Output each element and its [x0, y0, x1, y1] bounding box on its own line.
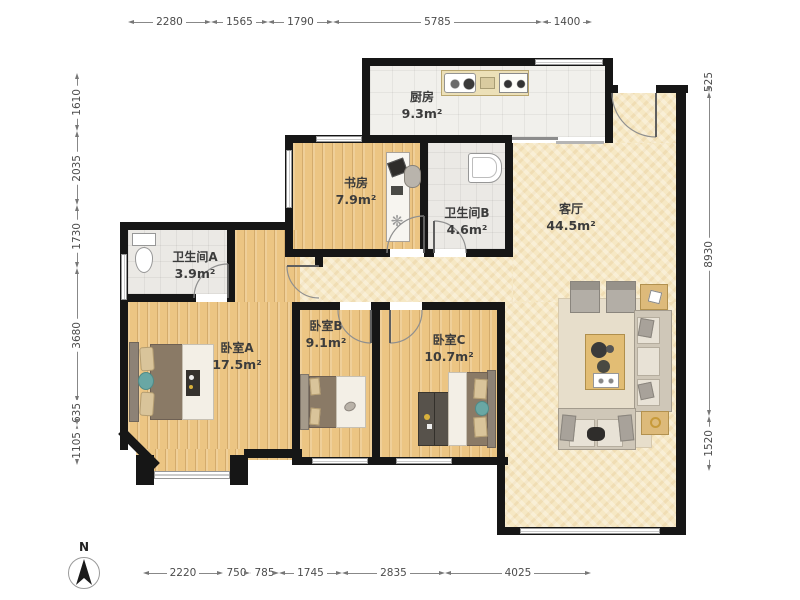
dim-top-3: 1790: [268, 15, 333, 29]
wall: [371, 302, 390, 310]
bay-window: [154, 471, 230, 479]
bathtub-icon: [468, 153, 502, 183]
wall: [605, 85, 618, 93]
bedroom-c-label: 卧室C 10.7m²: [404, 333, 494, 365]
wall: [372, 302, 380, 465]
dim-top-4: 5785: [333, 15, 542, 29]
bedroom-b-name: 卧室B: [281, 319, 371, 335]
side-table: [641, 411, 669, 435]
bedroom-a-label: 卧室A 17.5m²: [192, 341, 282, 373]
sofa-cushion: [637, 347, 660, 376]
toilet-tank-icon: [132, 233, 156, 246]
bathroom-b-label: 卫生间B 4.6m²: [424, 206, 510, 238]
pillow-icon: [309, 378, 320, 396]
dim-left-5: 635: [70, 402, 84, 425]
tray-icon: [593, 373, 619, 388]
wall: [292, 302, 340, 310]
sliding-door: [556, 141, 604, 144]
bedroom-b-bed: [300, 374, 366, 430]
wall: [120, 294, 196, 302]
study-label: 书房 7.9m²: [311, 176, 401, 208]
dim-bottom-3: 785: [250, 566, 279, 580]
hallway-floor: [293, 257, 513, 302]
study-area: 7.9m²: [311, 192, 401, 208]
compass: N: [67, 556, 101, 590]
dot-icon: [424, 414, 430, 420]
bedroom-c-area: 10.7m²: [404, 349, 494, 365]
dim-top-5: 1400: [542, 15, 592, 29]
dim-top-2: 1565: [211, 15, 268, 29]
wall: [676, 85, 686, 535]
wall: [362, 135, 512, 143]
pillow-icon: [637, 382, 654, 401]
bedroom-c-wardrobe: [418, 392, 450, 446]
pillow-icon: [139, 392, 155, 417]
bathtub-inner: [472, 157, 497, 178]
bedroom-a-area: 17.5m²: [192, 357, 282, 373]
living-room-label: 客厅 44.5m²: [525, 202, 617, 234]
bedroom-c-bed: [448, 370, 496, 448]
armchair-icon: [606, 281, 636, 313]
side-table: [640, 284, 668, 310]
wall: [605, 58, 613, 143]
wall: [497, 302, 505, 465]
dim-left-6: 1105: [70, 425, 84, 465]
dim-bottom-4: 1745: [279, 566, 342, 580]
dim-right-1: 525: [702, 73, 716, 92]
bay-post: [230, 455, 248, 485]
dot-icon: [189, 385, 193, 389]
wall: [293, 249, 390, 257]
dim-top-1: 2280: [128, 15, 211, 29]
bowl-icon: [650, 417, 661, 428]
duvet: [448, 372, 467, 446]
window: [520, 528, 660, 534]
dim-left-3: 1730: [70, 205, 84, 268]
north-arrow-icon: [67, 556, 101, 590]
bathroom-a-label: 卫生间A 3.9m²: [150, 250, 240, 282]
armchair-back: [607, 282, 635, 290]
plant-icon: ❋: [388, 212, 406, 230]
bathroom-b-name: 卫生间B: [424, 206, 510, 222]
cushion-teal-icon: [475, 401, 489, 416]
living-room-name: 客厅: [525, 202, 617, 218]
bedroom-b-area: 9.1m²: [281, 335, 371, 351]
window: [312, 458, 368, 464]
sliding-door: [512, 137, 558, 140]
bedroom-b-label: 卧室B 9.1m²: [281, 319, 371, 351]
bathroom-b-area: 4.6m²: [424, 222, 510, 238]
kitchen-label: 厨房 9.3m²: [378, 90, 466, 122]
dim-bottom-6: 4025: [445, 566, 591, 580]
kettle-icon: [591, 342, 607, 358]
cushion-teal-icon: [138, 372, 154, 390]
kitchen-item-icon: [480, 77, 495, 89]
wall: [505, 143, 513, 257]
pillow-icon: [473, 379, 487, 400]
compass-north-label: N: [67, 540, 101, 554]
dot-icon: [189, 375, 194, 380]
armchair-back: [571, 282, 599, 290]
dim-left-2: 2035: [70, 131, 84, 205]
dim-right-3: 1520: [702, 416, 716, 471]
window: [535, 59, 603, 65]
kitchen-name: 厨房: [378, 90, 466, 106]
pillow-icon: [139, 347, 155, 372]
floor-plan: ❋: [0, 0, 800, 600]
pillow-icon: [473, 417, 487, 438]
headboard: [300, 374, 309, 430]
wall: [497, 457, 505, 535]
wall: [424, 249, 434, 257]
wardrobe-seam: [434, 393, 435, 445]
pillow-icon: [309, 408, 320, 426]
window: [121, 254, 127, 300]
sofa: [634, 310, 672, 412]
pot-icon: [597, 360, 610, 373]
living-room-area: 44.5m²: [525, 218, 617, 234]
dim-left-4: 3680: [70, 268, 84, 402]
bedroom-a-name: 卧室A: [192, 341, 282, 357]
armchair-icon: [570, 281, 600, 313]
living-room-floor: [613, 93, 676, 143]
coffee-table: [585, 334, 625, 390]
bedroom-c-name: 卧室C: [404, 333, 494, 349]
wall: [228, 294, 235, 302]
dim-bottom-2: 750: [223, 566, 250, 580]
wall: [422, 302, 505, 310]
wall: [120, 222, 293, 230]
desk-chair-icon: [404, 165, 421, 188]
tv-panel-icon: [186, 370, 200, 396]
cup-icon: [606, 345, 614, 353]
dim-bottom-5: 2835: [342, 566, 445, 580]
stove-icon: [499, 73, 528, 93]
dark-item-icon: [587, 427, 605, 441]
bay-post: [136, 455, 154, 485]
dim-right-2: 8930: [702, 92, 716, 416]
blanket: [150, 344, 184, 420]
window: [396, 458, 452, 464]
bathroom-a-name: 卫生间A: [150, 250, 240, 266]
pillow-icon: [560, 414, 577, 441]
window: [286, 150, 292, 208]
dot-icon: [427, 424, 432, 429]
bathroom-a-area: 3.9m²: [150, 266, 240, 282]
book-icon: [648, 290, 663, 305]
pillow-icon: [618, 414, 635, 441]
study-name: 书房: [311, 176, 401, 192]
dim-bottom-1: 2220: [143, 566, 223, 580]
loveseat: [558, 408, 636, 450]
wall: [362, 58, 370, 143]
window: [316, 136, 362, 142]
kitchen-area: 9.3m²: [378, 106, 466, 122]
dim-left-1: 1610: [70, 73, 84, 131]
